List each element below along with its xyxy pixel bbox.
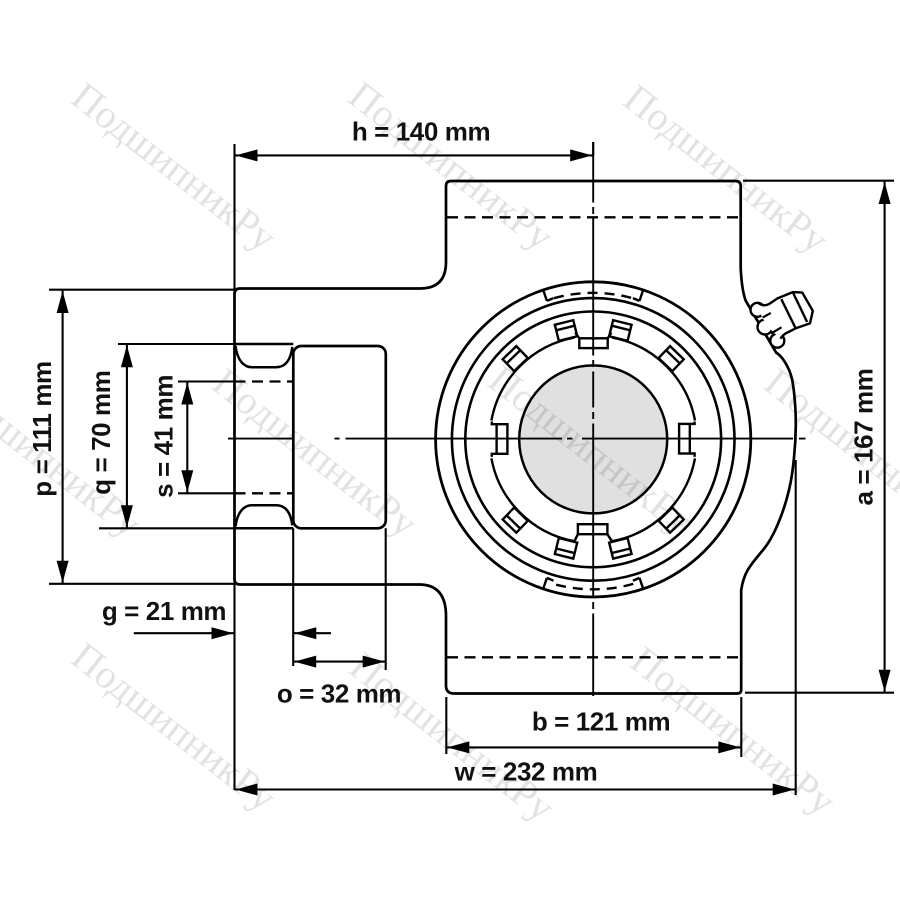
- svg-text:s = 41 mm: s = 41 mm: [149, 375, 179, 498]
- svg-text:b = 121 mm: b = 121 mm: [532, 707, 670, 737]
- svg-text:g = 21 mm: g = 21 mm: [102, 596, 226, 626]
